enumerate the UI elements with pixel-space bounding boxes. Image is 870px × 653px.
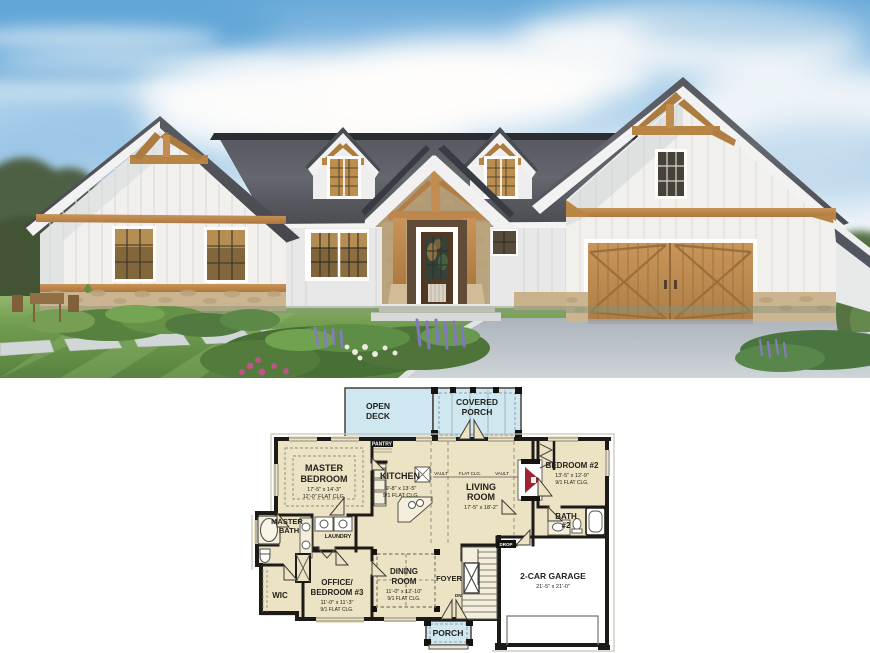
svg-text:9/1 FLAT CLG.: 9/1 FLAT CLG.	[555, 480, 588, 486]
svg-text:17'-5" x 18'-2": 17'-5" x 18'-2"	[464, 505, 498, 511]
svg-text:BATH: BATH	[279, 526, 299, 535]
svg-text:FOYER: FOYER	[436, 574, 462, 583]
svg-text:21'-5" x 21'-0": 21'-5" x 21'-0"	[536, 584, 570, 590]
svg-text:9/1 FLAT CLG.: 9/1 FLAT CLG.	[320, 607, 353, 613]
svg-text:17'-5" x 14'-3": 17'-5" x 14'-3"	[307, 487, 341, 493]
svg-text:11'-0" x 11'-3": 11'-0" x 11'-3"	[320, 600, 353, 606]
svg-text:LAUNDRY: LAUNDRY	[325, 534, 352, 540]
svg-text:DROP: DROP	[499, 542, 512, 547]
svg-text:BATH: BATH	[555, 512, 577, 521]
svg-text:9'-8" x 13'-5": 9'-8" x 13'-5"	[386, 486, 417, 492]
svg-text:#2: #2	[562, 521, 571, 530]
svg-text:BEDROOM: BEDROOM	[301, 474, 348, 484]
svg-text:13'-5" x 12'-9": 13'-5" x 12'-9"	[555, 473, 589, 479]
svg-text:ROOM: ROOM	[392, 577, 417, 586]
svg-text:VAULT: VAULT	[434, 471, 448, 476]
svg-text:11'-0" x 12'-10": 11'-0" x 12'-10"	[386, 589, 423, 595]
svg-text:BEDROOM #3: BEDROOM #3	[311, 588, 364, 597]
svg-text:DECK: DECK	[366, 411, 391, 421]
svg-text:VAULT: VAULT	[495, 471, 509, 476]
svg-text:PANTRY: PANTRY	[372, 442, 393, 448]
svg-text:LIVING: LIVING	[466, 482, 496, 492]
svg-text:WIC: WIC	[272, 591, 288, 600]
svg-text:PORCH: PORCH	[462, 407, 493, 417]
svg-text:MASTER: MASTER	[305, 463, 344, 473]
svg-text:DINING: DINING	[390, 567, 418, 576]
svg-text:OPEN: OPEN	[366, 401, 390, 411]
svg-text:ROOM: ROOM	[467, 492, 495, 502]
svg-text:MASTER: MASTER	[271, 517, 303, 526]
svg-text:PORCH: PORCH	[433, 628, 464, 638]
svg-text:9/1 FLAT CLG.: 9/1 FLAT CLG.	[383, 493, 420, 499]
svg-text:FLAT CLG.: FLAT CLG.	[459, 471, 481, 476]
svg-text:2-CAR GARAGE: 2-CAR GARAGE	[520, 571, 586, 581]
svg-text:BEDROOM #2: BEDROOM #2	[546, 461, 599, 470]
svg-text:OFFICE/: OFFICE/	[321, 578, 353, 587]
svg-text:9/1 FLAT CLG.: 9/1 FLAT CLG.	[387, 596, 420, 602]
svg-text:COVERED: COVERED	[456, 397, 498, 407]
svg-text:12'-0" FLAT CLG.: 12'-0" FLAT CLG.	[303, 494, 346, 500]
svg-text:DN: DN	[455, 593, 462, 598]
svg-text:KITCHEN: KITCHEN	[380, 471, 420, 481]
